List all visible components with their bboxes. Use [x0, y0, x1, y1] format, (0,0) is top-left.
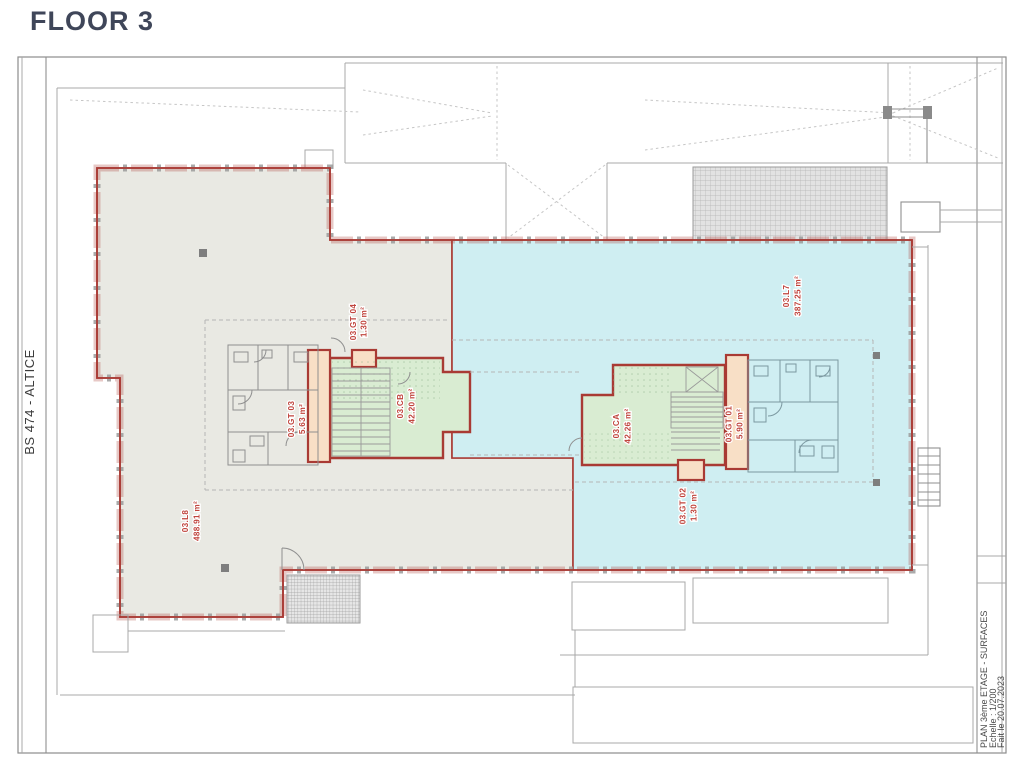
- zone-03-GT03: [308, 350, 330, 462]
- label-03-CB-area: 42.20 m²: [408, 388, 417, 423]
- label-03-GT03-code: 03.GT 03: [287, 401, 296, 438]
- label-03-L8-code: 03.L8: [181, 510, 190, 533]
- label-03-GT03-area: 5.63 m²: [298, 404, 307, 434]
- floor-plan-drawing: 03.L8 488.91 m² 03.L7 387.25 m² 03.CB 42…: [0, 0, 1024, 768]
- label-03-GT01-code: 03.GT 01: [725, 406, 734, 443]
- label-03-GT02-code: 03.GT 02: [679, 488, 688, 525]
- label-03-GT04-area: 1.30 m²: [360, 307, 369, 337]
- terrace-hatched-block: [287, 575, 360, 623]
- right-titleblock-line3: Fait le 20.07.2023: [996, 676, 1006, 748]
- label-03-GT01-area: 5.90 m²: [736, 409, 745, 439]
- label-03-L7-area: 387.25 m²: [794, 276, 803, 316]
- roof-hatched-block: [693, 167, 887, 240]
- roof-small-box: [901, 202, 940, 232]
- label-03-CB-code: 03.CB: [396, 394, 405, 419]
- label-03-GT04-code: 03.GT 04: [349, 304, 358, 341]
- roof-beam-detail: [883, 106, 932, 163]
- floorplan-page: FLOOR 3: [0, 0, 1024, 768]
- label-03-L7-code: 03.L7: [782, 285, 791, 308]
- zone-03-GT02: [678, 460, 704, 480]
- left-titleblock-label: BS 474 - ALTICE: [22, 349, 37, 455]
- label-03-CA-area: 42.26 m²: [624, 408, 633, 443]
- label-03-GT02-area: 1.30 m²: [690, 491, 699, 521]
- label-03-L8-area: 488.91 m²: [193, 501, 202, 541]
- label-03-CA-code: 03.CA: [612, 414, 621, 439]
- ladder-symbol: [918, 448, 940, 506]
